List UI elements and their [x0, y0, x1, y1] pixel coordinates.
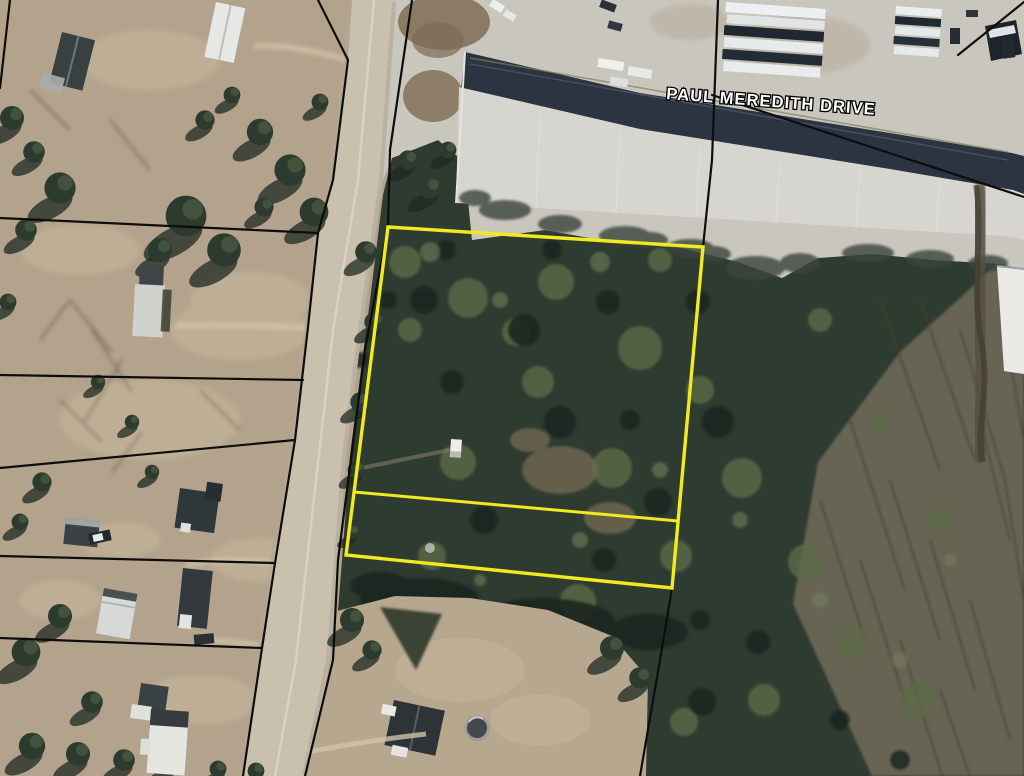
porch [180, 523, 191, 533]
porch [179, 614, 192, 629]
small-clearing-object [425, 543, 435, 553]
car [966, 10, 978, 17]
car-on-lane [194, 633, 215, 645]
house-white-body [147, 725, 188, 776]
house-roof [132, 284, 165, 337]
hut-in-parcel [450, 439, 462, 458]
shed-white [130, 704, 152, 721]
dirt-patch-core [412, 22, 464, 58]
dirt-patch-lower [403, 70, 463, 122]
car [950, 28, 960, 44]
house-dark-roof-sw [177, 568, 213, 631]
house-wing [205, 482, 223, 502]
hut-side [450, 451, 461, 458]
aerial-map-view[interactable]: PAUL MEREDITH DRIVE [0, 0, 1024, 776]
trailer-row-east [893, 6, 942, 57]
house-wing [140, 738, 151, 755]
satellite-image: PAUL MEREDITH DRIVE [0, 0, 1024, 776]
